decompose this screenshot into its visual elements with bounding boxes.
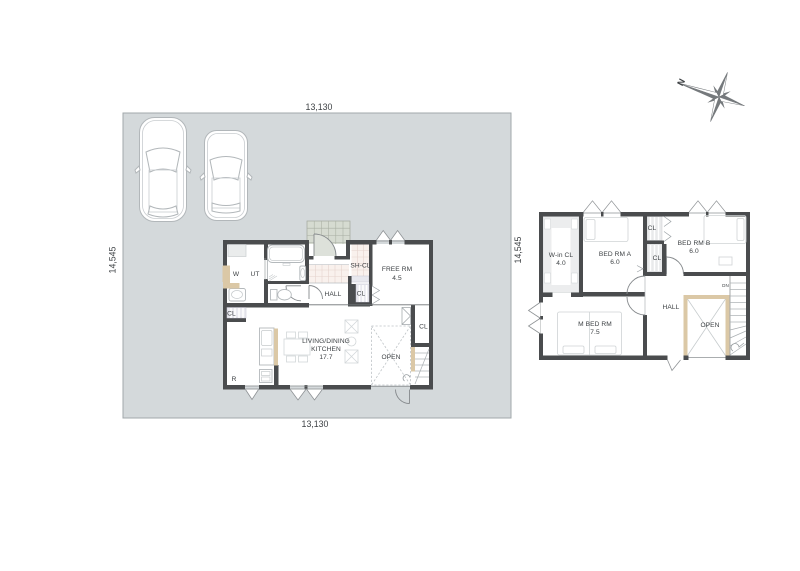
svg-text:DN: DN	[722, 283, 729, 288]
svg-text:13,130: 13,130	[306, 102, 333, 112]
svg-text:HALL: HALL	[663, 304, 680, 311]
svg-text:UT: UT	[251, 271, 260, 278]
svg-text:CL: CL	[227, 311, 236, 318]
svg-text:6.0: 6.0	[689, 248, 699, 255]
svg-text:W: W	[233, 271, 240, 278]
svg-text:4.5: 4.5	[392, 275, 402, 282]
svg-text:FREE RM: FREE RM	[382, 266, 412, 273]
svg-text:M BED RM: M BED RM	[578, 321, 612, 328]
svg-text:BED RM A: BED RM A	[599, 251, 632, 258]
svg-text:CL: CL	[653, 255, 662, 262]
svg-text:R: R	[232, 376, 237, 383]
svg-text:OPEN: OPEN	[700, 322, 719, 329]
svg-text:CL: CL	[357, 291, 366, 298]
svg-text:13,130: 13,130	[302, 419, 329, 429]
svg-text:LIVING/DINING: LIVING/DINING	[302, 338, 350, 345]
svg-text:KITCHEN: KITCHEN	[311, 346, 341, 353]
svg-text:CL: CL	[648, 225, 657, 232]
svg-text:14,545: 14,545	[513, 236, 523, 263]
svg-text:17.7: 17.7	[319, 354, 332, 361]
svg-text:7.5: 7.5	[590, 329, 600, 336]
svg-text:14,545: 14,545	[108, 246, 118, 273]
svg-text:6.0: 6.0	[610, 259, 620, 266]
svg-text:W-in CL: W-in CL	[549, 252, 574, 259]
svg-text:OPEN: OPEN	[381, 354, 400, 361]
svg-text:SH-CL: SH-CL	[350, 263, 371, 270]
svg-text:4.0: 4.0	[556, 260, 566, 267]
svg-text:HALL: HALL	[325, 291, 342, 298]
svg-text:BED RM B: BED RM B	[678, 240, 711, 247]
svg-text:CL: CL	[419, 324, 428, 331]
